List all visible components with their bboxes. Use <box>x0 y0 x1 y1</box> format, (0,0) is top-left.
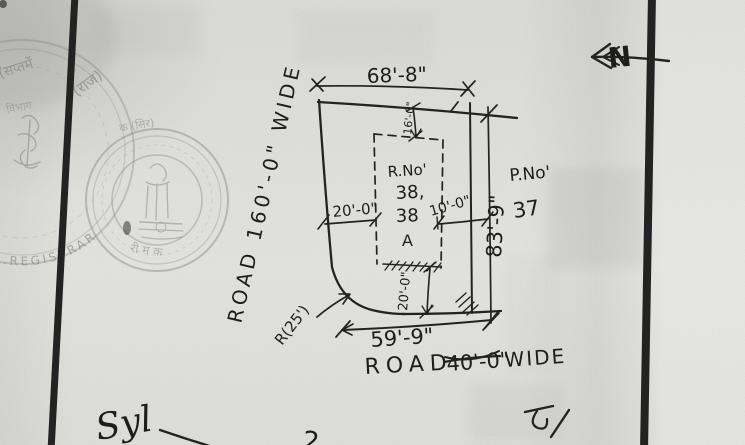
paper-grain-texture <box>0 0 745 445</box>
scanned-site-plan-document: (सप्तमें (राज) विभाग R.REGISTRAR क (सिर)… <box>0 0 745 445</box>
site-plan-drawing: (सप्तमें (राज) विभाग R.REGISTRAR क (सिर)… <box>0 0 745 445</box>
